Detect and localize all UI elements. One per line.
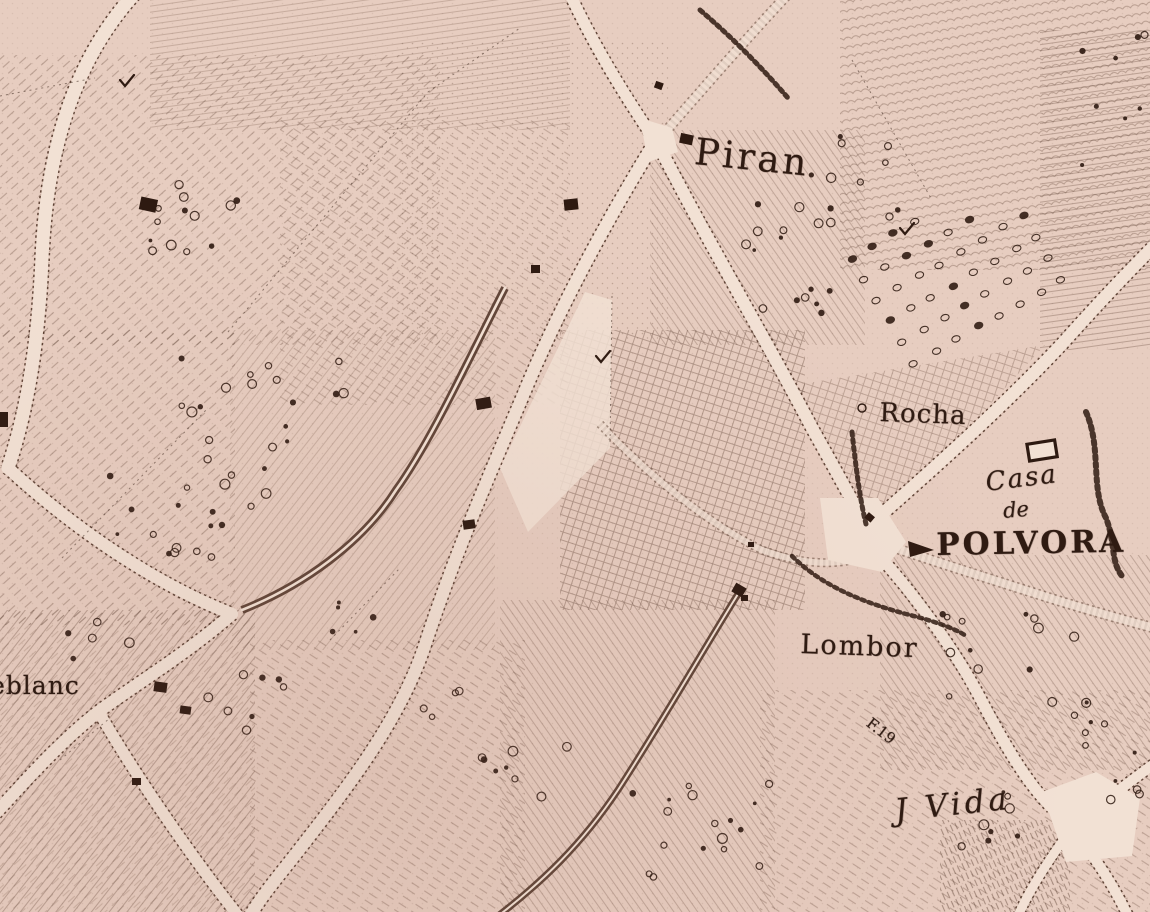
vignette [0, 0, 1150, 912]
place-label-eblanc: eblanc [0, 671, 80, 700]
place-label-polvora: POLVORA [936, 524, 1126, 563]
place-label-lombor: Lombor [800, 629, 919, 664]
place-label-de: de [1002, 497, 1030, 523]
map-engraving [0, 0, 1150, 912]
place-label-rocha: Rocha [879, 398, 967, 431]
historical-map: Piran Rocha Casa de POLVORA Lombor J Vid… [0, 0, 1150, 912]
